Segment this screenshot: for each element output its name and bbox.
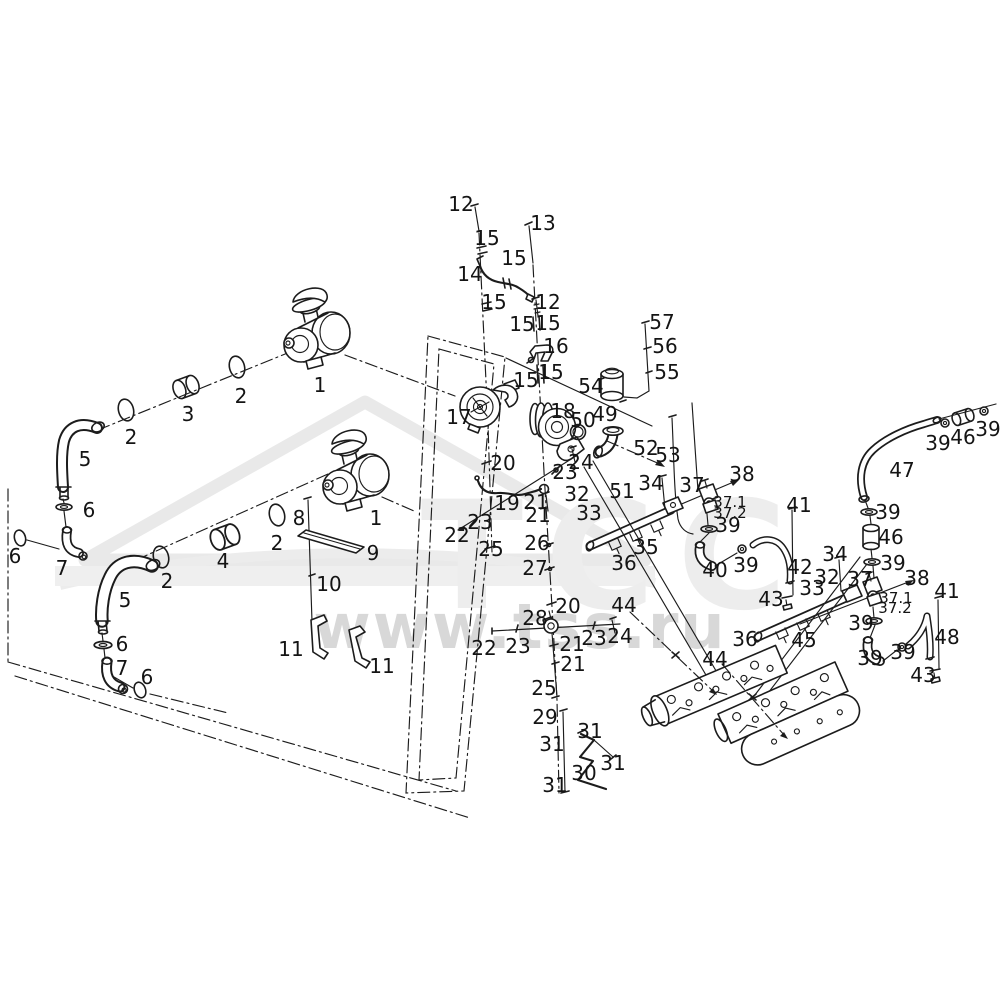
part-callout-39: 39: [733, 553, 758, 577]
part-callout-25: 25: [531, 676, 556, 700]
part-callout-8: 8: [293, 506, 306, 530]
part-callout-31: 31: [539, 732, 564, 756]
part-callout-56: 56: [652, 334, 677, 358]
part-callout-46: 46: [950, 425, 975, 449]
hose-clip: [980, 407, 988, 415]
part-callout-51: 51: [609, 479, 634, 503]
part-callout-9: 9: [367, 541, 380, 565]
part-callout-24: 24: [607, 624, 632, 648]
part-callout-11: 11: [278, 637, 303, 661]
part-callout-34: 34: [638, 471, 663, 495]
part-callout-26: 26: [524, 531, 549, 555]
part-callout-21: 21: [560, 652, 585, 676]
part-callout-17: 17: [446, 405, 471, 429]
part-callout-2: 2: [125, 425, 138, 449]
part-callout-6: 6: [141, 665, 154, 689]
part-callout-15: 15: [538, 360, 563, 384]
part-callout-22: 22: [471, 636, 496, 660]
part-callout-15: 15: [513, 368, 538, 392]
part-callout-57: 57: [649, 310, 674, 334]
part-callout-31: 31: [600, 751, 625, 775]
part-callout-25: 25: [478, 537, 503, 561]
o-ring: [267, 503, 287, 528]
part-callout-22: 22: [444, 523, 469, 547]
part-callout-44: 44: [611, 593, 636, 617]
part-callout-38: 38: [904, 566, 929, 590]
part-callout-5: 5: [79, 447, 92, 471]
part-callout-2: 2: [271, 531, 284, 555]
part-callout-21: 21: [525, 503, 550, 527]
part-callout-53: 53: [655, 443, 680, 467]
breather-chain-upper: [13, 288, 455, 560]
part-callout-40: 40: [702, 558, 727, 582]
hose-bushing: [208, 522, 243, 552]
part-callout-11: 11: [369, 654, 394, 678]
hose-sleeve: [951, 407, 976, 426]
part-callout-6: 6: [9, 544, 22, 568]
part-callout-35: 35: [633, 535, 658, 559]
diagram-page: ТСС www.tss.ru: [0, 0, 1000, 1000]
part-callout-15: 15: [474, 226, 499, 250]
hose-bushing: [171, 374, 202, 401]
part-callout-36: 36: [611, 551, 636, 575]
part-callout-5: 5: [119, 588, 132, 612]
part-callout-6: 6: [83, 498, 96, 522]
clamp-bolt-stack: [624, 321, 652, 398]
part-callout-31: 31: [577, 719, 602, 743]
breather-assembly: [323, 430, 389, 511]
part-callout-37: 37: [679, 473, 704, 497]
part-callout-44: 44: [702, 647, 727, 671]
sealing-washer: [56, 504, 72, 510]
part-callout-19: 19: [494, 491, 519, 515]
sealing-washer: [864, 559, 880, 565]
part-callout-46: 46: [878, 525, 903, 549]
part-callout-14: 14: [457, 262, 482, 286]
part-callout-10: 10: [316, 572, 341, 596]
part-callout-41: 41: [934, 579, 959, 603]
part-callout-3: 3: [182, 402, 195, 426]
part-callout-2: 2: [235, 384, 248, 408]
part-callout-43: 43: [758, 587, 783, 611]
part-callout-39: 39: [975, 417, 1000, 441]
breather-assembly: [284, 288, 350, 369]
part-callout-49: 49: [592, 402, 617, 426]
part-callout-37.2: 37.2: [878, 599, 911, 617]
part-callout-23: 23: [505, 634, 530, 658]
part-callout-15: 15: [481, 290, 506, 314]
part-callout-39: 39: [890, 640, 915, 664]
exploded-parts-diagram-canvas: ТСС www.tss.ru: [0, 0, 1000, 1000]
part-callout-39: 39: [925, 431, 950, 455]
part-callout-34: 34: [822, 542, 847, 566]
part-callout-20: 20: [555, 594, 580, 618]
part-callout-12: 12: [448, 192, 473, 216]
part-callout-48: 48: [934, 625, 959, 649]
part-callout-37: 37: [847, 567, 872, 591]
part-callout-39: 39: [715, 513, 740, 537]
part-callout-4: 4: [217, 549, 230, 573]
part-callout-27: 27: [522, 556, 547, 580]
part-callout-13: 13: [530, 211, 555, 235]
part-callout-23: 23: [552, 460, 577, 484]
part-callout-39: 39: [875, 500, 900, 524]
watermark: ТСС www.tss.ru: [55, 402, 809, 663]
part-callout-1: 1: [370, 506, 383, 530]
part-callout-29: 29: [532, 705, 557, 729]
part-callout-39: 39: [848, 611, 873, 635]
part-callout-28: 28: [522, 606, 547, 630]
part-callout-1: 1: [314, 373, 327, 397]
part-callout-33: 33: [799, 576, 824, 600]
part-callout-7: 7: [116, 656, 129, 680]
part-callout-43: 43: [910, 663, 935, 687]
part-callout-55: 55: [654, 360, 679, 384]
part-callout-23: 23: [467, 510, 492, 534]
part-callout-6: 6: [116, 632, 129, 656]
part-callout-15: 15: [509, 312, 534, 336]
sealing-washer: [94, 641, 112, 648]
part-callout-39: 39: [857, 646, 882, 670]
part-callout-30: 30: [571, 761, 596, 785]
part-callout-45: 45: [791, 628, 816, 652]
part-callout-31: 31: [542, 773, 567, 797]
part-callout-36: 36: [732, 627, 757, 651]
part-callout-54: 54: [578, 374, 603, 398]
part-callout-33: 33: [576, 501, 601, 525]
part-callout-23: 23: [581, 626, 606, 650]
part-callout-15: 15: [535, 311, 560, 335]
part-callout-7: 7: [56, 556, 69, 580]
part-callout-39: 39: [880, 551, 905, 575]
part-callout-16: 16: [543, 334, 568, 358]
part-callout-41: 41: [786, 493, 811, 517]
hose-clip: [941, 419, 949, 427]
part-callout-47: 47: [889, 458, 914, 482]
exhaust-elbow: [592, 427, 623, 459]
part-callout-2: 2: [161, 569, 174, 593]
part-callout-38: 38: [729, 462, 754, 486]
part-callout-20: 20: [490, 451, 515, 475]
part-callout-15: 15: [501, 246, 526, 270]
